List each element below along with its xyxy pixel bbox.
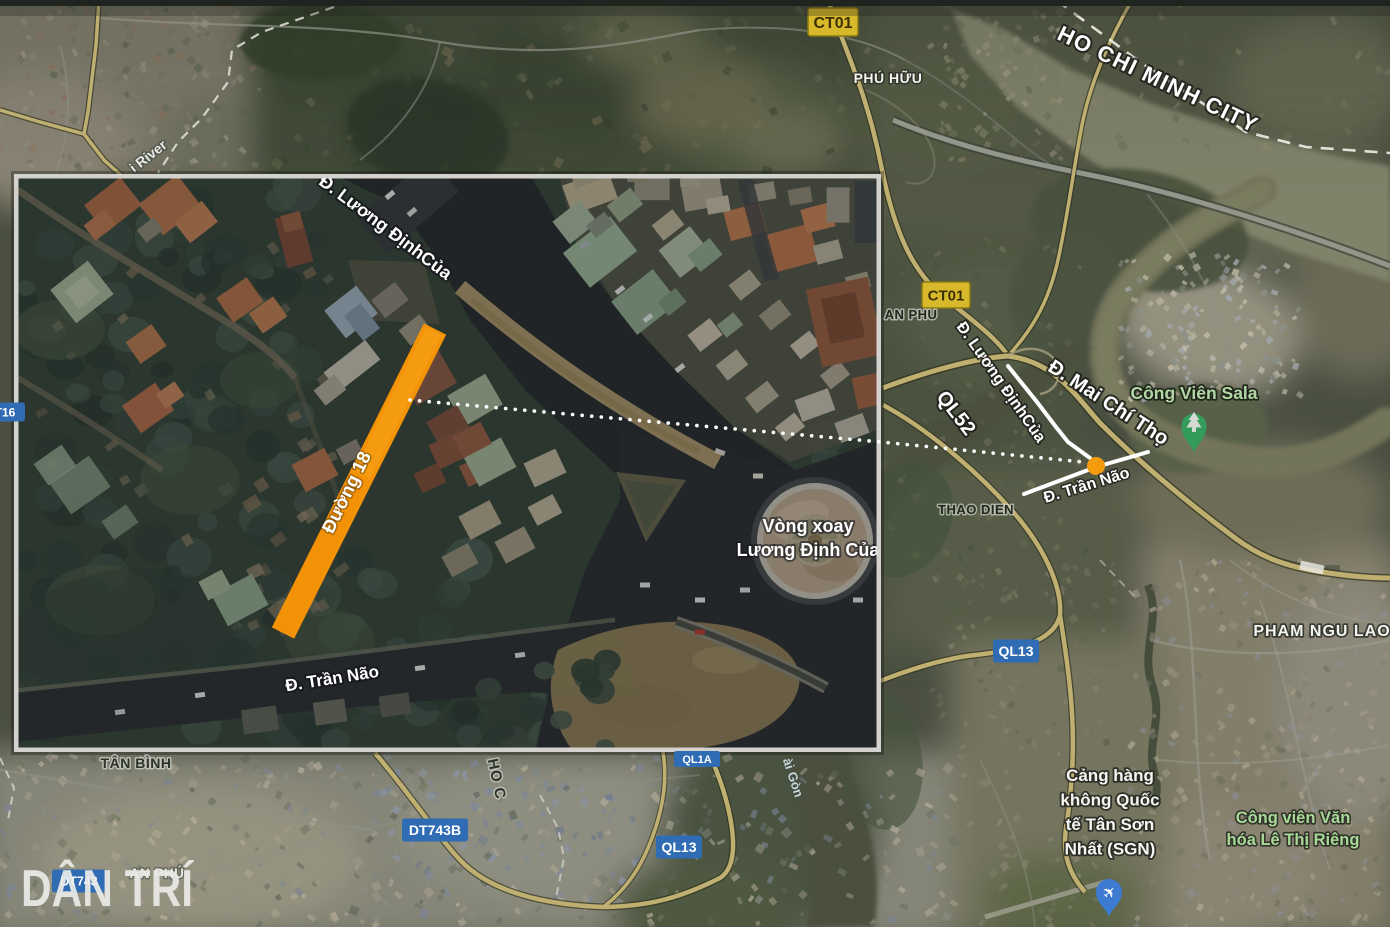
svg-text:QL13: QL13 [661, 839, 696, 855]
svg-text:TÂN BÌNH: TÂN BÌNH [101, 754, 172, 771]
svg-text:PHÚ HỮU: PHÚ HỮU [854, 69, 923, 86]
svg-text:Công Viên Sala: Công Viên Sala [1130, 383, 1257, 403]
svg-text:hóa Lê Thị Riêng: hóa Lê Thị Riêng [1227, 831, 1360, 849]
svg-text:QL1A: QL1A [682, 754, 711, 766]
svg-text:CT01: CT01 [813, 15, 852, 32]
svg-text:DÂN TRÍ: DÂN TRÍ [21, 859, 194, 918]
svg-text:Lương Định Của: Lương Định Của [737, 540, 881, 560]
svg-text:Công viên Văn: Công viên Văn [1236, 809, 1351, 827]
svg-text:Cảng hàng: Cảng hàng [1066, 766, 1154, 785]
svg-text:tế Tân Sơn: tế Tân Sơn [1066, 815, 1155, 834]
svg-text:CT01: CT01 [928, 287, 965, 304]
svg-text:AN PHU: AN PHU [885, 307, 938, 322]
svg-text:QL13: QL13 [998, 643, 1033, 659]
svg-text:THAO DIEN: THAO DIEN [938, 502, 1014, 517]
svg-text:T16: T16 [0, 405, 16, 419]
svg-text:DT743B: DT743B [409, 822, 461, 838]
svg-text:PHAM NGU LAO: PHAM NGU LAO [1253, 623, 1390, 640]
svg-text:Nhất (SGN): Nhất (SGN) [1065, 840, 1156, 859]
svg-text:không Quốc: không Quốc [1060, 791, 1159, 810]
svg-text:Vòng xoay: Vòng xoay [762, 516, 853, 536]
